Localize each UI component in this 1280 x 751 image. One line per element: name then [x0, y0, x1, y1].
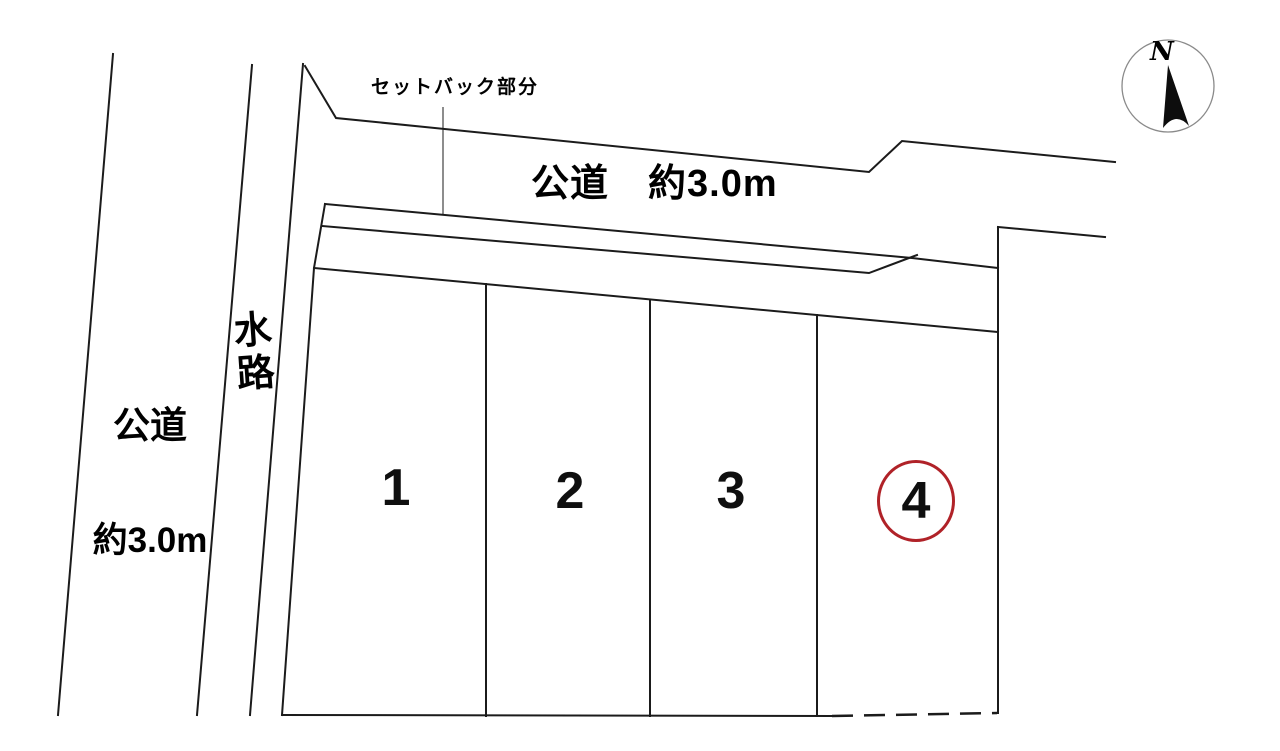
- left-road-label-line1: 公道: [75, 407, 225, 446]
- left-road-label-line2: 約3.0m: [75, 523, 225, 560]
- plot-number-4: 4: [902, 475, 931, 527]
- top-road-label: 公道 約3.0m: [531, 165, 778, 205]
- compass-north-label: N: [1150, 39, 1174, 66]
- setback-strip-top-line: [325, 204, 998, 268]
- plot-4-highlight-circle: 4: [877, 460, 955, 542]
- plot-number-1: 1: [356, 462, 436, 514]
- plot-number-2: 2: [530, 465, 610, 517]
- waterway-label: 水路: [226, 309, 272, 398]
- right-top-branch-line: [998, 227, 1105, 237]
- setback-label: セットバック部分: [371, 78, 539, 98]
- left-road-label: 公道 約3.0m: [75, 331, 225, 635]
- plot-block-bottom-edge: [282, 715, 832, 716]
- plot-number-3: 3: [691, 465, 771, 517]
- land-plot-diagram: セットバック部分 公道 約3.0m 公道 約3.0m 水路 N 1 2 3 4: [0, 0, 1280, 751]
